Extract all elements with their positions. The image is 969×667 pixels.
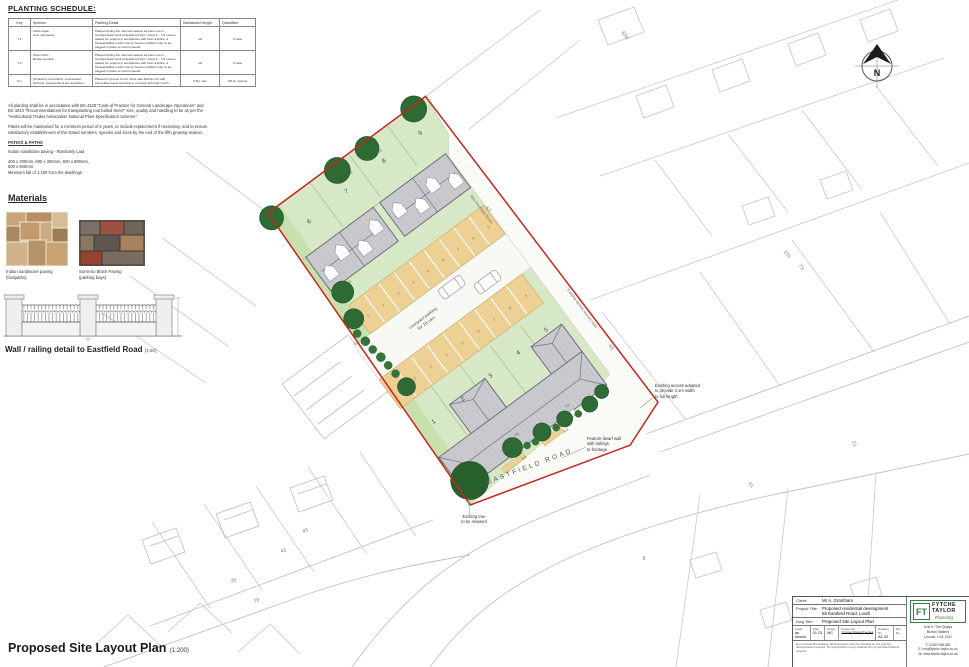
planting-notes: All planting shall be in accordance with… — [8, 103, 208, 180]
table-row: T.2 Silver birch Betula pendula Planted … — [9, 51, 256, 75]
dwg-row: Dwg Title: Proposed Site Layout Plan — [793, 618, 906, 626]
cell-species: Field maple Acer campestre — [31, 27, 93, 51]
materials-heading: Materials — [8, 193, 47, 203]
logo-ft-monogram: FT — [913, 603, 930, 620]
photo1-sub: (footpaths) — [6, 275, 72, 281]
planting-schedule-heading: PLANTING SCHEDULE: — [8, 4, 96, 13]
map-house-number: 8 — [643, 556, 646, 562]
project-value: Proposed residential development 55 East… — [822, 606, 888, 616]
map-house-number: 45 — [302, 527, 310, 535]
col-height: Maintained Height — [181, 19, 220, 27]
table-row: T.1 Field maple Acer campestre Planted d… — [9, 27, 256, 51]
base-map-hatched-houses — [142, 335, 390, 564]
cell-detail: Planted during the dormant season as bar… — [93, 27, 181, 51]
north-arrow-n: N — [874, 68, 881, 78]
cell-detail: Planted in groups of min 10 at max 600mm… — [93, 75, 181, 87]
note-standards: All planting shall be in accordance with… — [8, 103, 208, 119]
drawing-sheet: 1 2 3 4 5 6 7 8 9 1 2 3 4 5 6 7 8 9 — [0, 0, 969, 667]
drawing-no-label: Drawing No. — [878, 627, 891, 635]
note-maintenance: Plants will be maintained for a minimum … — [8, 124, 208, 135]
photo-sorrento-block — [79, 220, 145, 266]
wall-caption-text: Wall / railing detail to Eastfield Road — [5, 345, 143, 354]
annotation-existing-access: Existing access adapted to provide 4.1m … — [655, 383, 717, 399]
table-row: S.1 Shrubbery comprising: cotoneaster, b… — [9, 75, 256, 87]
date-field: Date: 01.23 — [811, 626, 826, 640]
project-no-value: 234/AGRANTHAM — [841, 631, 873, 635]
drawing-no-field: Drawing No. A1-02 — [876, 626, 894, 640]
map-house-number: 21 — [851, 441, 858, 448]
map-house-number: 63a — [620, 30, 630, 40]
photo1-caption: Indian sandstone paving (footpaths) — [6, 269, 72, 281]
photo-indian-sandstone — [6, 212, 68, 266]
client-label: Client: — [796, 598, 822, 603]
cell-detail: Planted during the dormant season as bar… — [93, 51, 181, 75]
company-contact: T: 01522 581383 E: info@fytche-taylor.co… — [910, 643, 966, 657]
wall-railing-detail-drawing — [4, 292, 186, 342]
photo2-sub: (parking bays) — [79, 275, 145, 281]
client-value: Mr A. Grantham — [822, 598, 853, 603]
cell-species: Shrubbery comprising: cotoneaster, berbe… — [31, 75, 93, 87]
cell-key: S.1 — [9, 75, 31, 87]
patios-sizes: 400 x 300mm, 600 x 300mm, 600 x 600mm, 6… — [8, 159, 208, 175]
map-house-number: 39 — [230, 577, 238, 585]
wall-caption-scale: (1:50) — [145, 348, 157, 353]
map-house-number: 73 — [797, 263, 805, 271]
title-block-fields: Client: Mr A. Grantham Project Title: Pr… — [793, 597, 907, 667]
title-block-branding: FT FYTCHE TAYLOR Planning Unit 5, The Qu… — [907, 597, 969, 667]
logo-name-3: Planning — [932, 615, 956, 620]
company-address: Unit 5, The Quays Burton Waters Lincoln,… — [910, 625, 966, 640]
site-group: 1 2 3 4 5 6 7 8 9 1 2 3 4 5 6 7 8 9 — [249, 85, 669, 545]
cell-qty: (26 lin metres) — [220, 75, 256, 87]
disclaimer-text: Do not scale this drawing. All dimension… — [793, 641, 906, 655]
col-detail: Planting Detail — [93, 19, 181, 27]
revision-row: Scale: as shown Date: 01.23 Drawn: MC Pr… — [793, 626, 906, 641]
project-label: Project Title: — [796, 606, 822, 616]
rev-no-label: Rev No. — [896, 627, 904, 635]
cell-height: n/a — [181, 27, 220, 51]
rev-no-field: Rev No. — [894, 626, 906, 640]
annotation-dwarf-wall: Feature dwarf wall with railings to fron… — [587, 436, 639, 452]
planting-schedule-table: Key Species Planting Detail Maintained H… — [8, 18, 256, 87]
col-key: Key — [9, 19, 31, 27]
sheet-title-scale: (1:200) — [170, 648, 189, 654]
scale-field: Scale: as shown — [793, 626, 811, 640]
cell-height: n/a — [181, 51, 220, 75]
col-species: Species — [31, 19, 93, 27]
client-row: Client: Mr A. Grantham — [793, 597, 906, 605]
annotation-existing-tree: Existing tree to be retained — [450, 514, 498, 525]
wall-detail-caption: Wall / railing detail to Eastfield Road … — [5, 345, 157, 354]
cell-key: T.1 — [9, 27, 31, 51]
drawn-field: Drawn: MC — [825, 626, 839, 640]
map-house-number: 109 — [782, 249, 792, 259]
title-block: Client: Mr A. Grantham Project Title: Pr… — [792, 596, 969, 667]
drawing-no-value: A1-02 — [878, 635, 891, 639]
patios-paths-heading: PATIOS & PATHS — [8, 140, 208, 146]
project-no-field: Project No. 234/AGRANTHAM — [839, 626, 876, 640]
col-qty: Quantities — [220, 19, 256, 27]
photo2-caption: Sorrento Block Paving (parking bays) — [79, 269, 145, 281]
map-house-number: 29 — [253, 597, 261, 605]
cell-species: Silver birch Betula pendula — [31, 51, 93, 75]
patios-spec: Indian sandstone paving - Randomly Laid — [8, 149, 208, 154]
table-header-row: Key Species Planting Detail Maintained H… — [9, 19, 256, 27]
date-value: 01.23 — [813, 631, 823, 635]
cell-qty: 6 total — [220, 27, 256, 51]
cell-qty: 5 total — [220, 51, 256, 75]
sheet-title: Proposed Site Layout Plan (1:200) — [8, 641, 189, 655]
north-arrow-icon: N — [855, 44, 899, 88]
dwg-value: Proposed Site Layout Plan — [822, 619, 874, 624]
map-house-number: 43 — [280, 547, 288, 555]
scale-value: as shown — [795, 631, 808, 639]
company-logo: FT FYTCHE TAYLOR Planning — [910, 600, 966, 623]
map-house-number: 61 — [747, 481, 755, 489]
dwg-label: Dwg Title: — [796, 619, 822, 624]
cell-height: 0.8m max — [181, 75, 220, 87]
sheet-title-text: Proposed Site Layout Plan — [8, 641, 166, 655]
cell-key: T.2 — [9, 51, 31, 75]
drawn-value: MC — [827, 631, 836, 635]
project-row: Project Title: Proposed residential deve… — [793, 605, 906, 618]
